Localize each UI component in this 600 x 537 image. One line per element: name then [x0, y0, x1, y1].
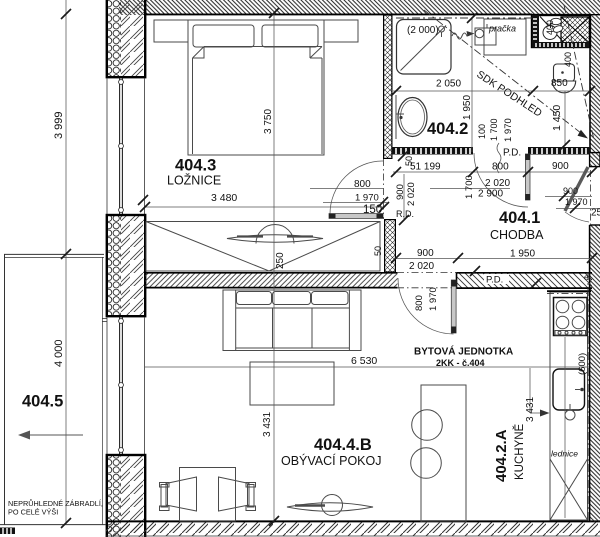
svg-text:250: 250 [275, 252, 286, 269]
svg-text:850: 850 [551, 78, 568, 89]
svg-text:CHODBA: CHODBA [490, 228, 544, 242]
svg-text:800: 800 [492, 162, 509, 173]
svg-text:404.1: 404.1 [499, 209, 540, 227]
svg-text:R.D.: R.D. [396, 209, 414, 219]
svg-text:el.: el. [584, 273, 592, 282]
svg-text:6 530: 6 530 [351, 355, 377, 367]
svg-text:400: 400 [545, 20, 555, 35]
svg-text:BYTOVÁ JEDNOTKA: BYTOVÁ JEDNOTKA [414, 345, 513, 358]
svg-text:1 700: 1 700 [464, 175, 475, 199]
svg-text:P.D.: P.D. [486, 275, 503, 286]
svg-text:900: 900 [417, 248, 434, 259]
svg-text:1 950: 1 950 [510, 249, 535, 260]
svg-text:(600): (600) [577, 353, 588, 375]
svg-text:3 750: 3 750 [263, 109, 274, 134]
svg-text:900: 900 [552, 161, 569, 172]
svg-text:404.2: 404.2 [427, 120, 468, 138]
svg-text:PO CELÉ VÝŠI: PO CELÉ VÝŠI [8, 508, 58, 517]
svg-text:pračka: pračka [488, 24, 516, 34]
svg-text:50: 50 [373, 246, 383, 256]
svg-text:OBÝVACÍ POKOJ: OBÝVACÍ POKOJ [281, 453, 382, 468]
svg-text:250: 250 [591, 208, 600, 219]
svg-text:1 700: 1 700 [489, 118, 499, 141]
svg-text:P.D.: P.D. [503, 148, 521, 159]
svg-text:LOŽNICE: LOŽNICE [167, 173, 221, 188]
svg-text:2KK - č.404: 2KK - č.404 [436, 358, 485, 368]
svg-text:3 431: 3 431 [525, 397, 536, 422]
svg-text:1 970: 1 970 [428, 287, 439, 311]
svg-text:404.4.B: 404.4.B [314, 436, 372, 454]
svg-text:800: 800 [354, 179, 371, 190]
svg-text:800: 800 [414, 295, 425, 311]
svg-text:3 431: 3 431 [262, 412, 273, 437]
svg-text:4 000: 4 000 [53, 339, 65, 367]
svg-text:KUCHYNĚ: KUCHYNĚ [513, 423, 526, 480]
svg-text:1 970: 1 970 [503, 118, 514, 142]
svg-text:1 450: 1 450 [551, 105, 563, 131]
svg-text:1 950: 1 950 [462, 95, 473, 120]
svg-text:51 199: 51 199 [410, 162, 441, 173]
svg-text:100: 100 [477, 124, 487, 139]
svg-text:1 970: 1 970 [355, 193, 379, 204]
svg-text:2 050: 2 050 [436, 79, 461, 90]
svg-text:404.2.A: 404.2.A [493, 429, 510, 482]
svg-text:1 970: 1 970 [565, 197, 588, 207]
svg-text:2 020: 2 020 [485, 178, 510, 189]
svg-text:lednice: lednice [551, 449, 578, 459]
svg-text:400: 400 [563, 52, 573, 67]
svg-text:900: 900 [395, 184, 406, 200]
svg-text:2 020: 2 020 [406, 182, 417, 206]
svg-text:404.5: 404.5 [22, 393, 63, 411]
svg-text:2 900: 2 900 [478, 189, 503, 200]
svg-text:3 480: 3 480 [211, 192, 237, 204]
svg-text:404.3: 404.3 [175, 157, 216, 175]
svg-text:3 999: 3 999 [53, 111, 65, 139]
svg-text:2 020: 2 020 [409, 261, 434, 272]
svg-text:900: 900 [563, 186, 578, 196]
svg-text:(2 000): (2 000) [407, 25, 439, 36]
